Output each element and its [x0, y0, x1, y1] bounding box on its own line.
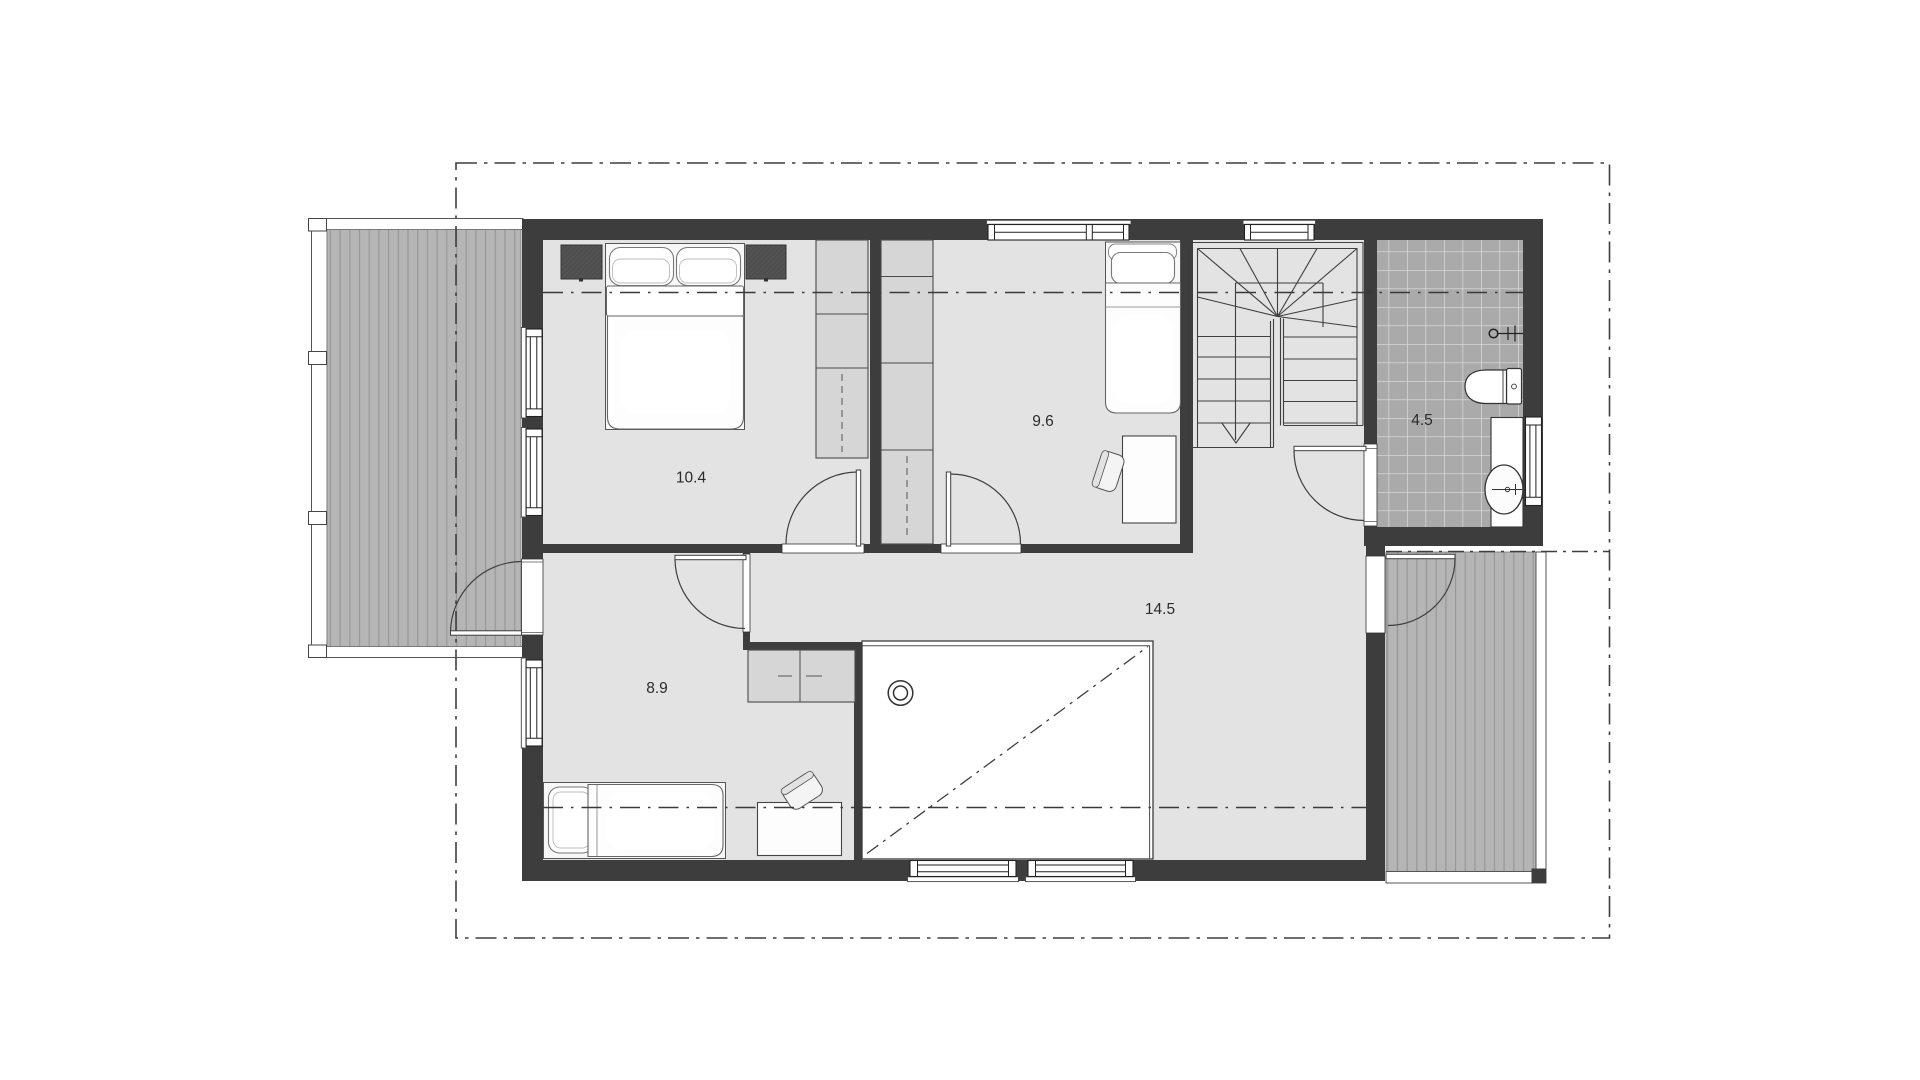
- svg-text:14.5: 14.5: [1145, 601, 1175, 618]
- svg-text:10.4: 10.4: [676, 470, 707, 487]
- svg-text:9.6: 9.6: [1032, 413, 1054, 430]
- svg-text:8.9: 8.9: [646, 680, 668, 697]
- svg-text:4.5: 4.5: [1411, 412, 1433, 429]
